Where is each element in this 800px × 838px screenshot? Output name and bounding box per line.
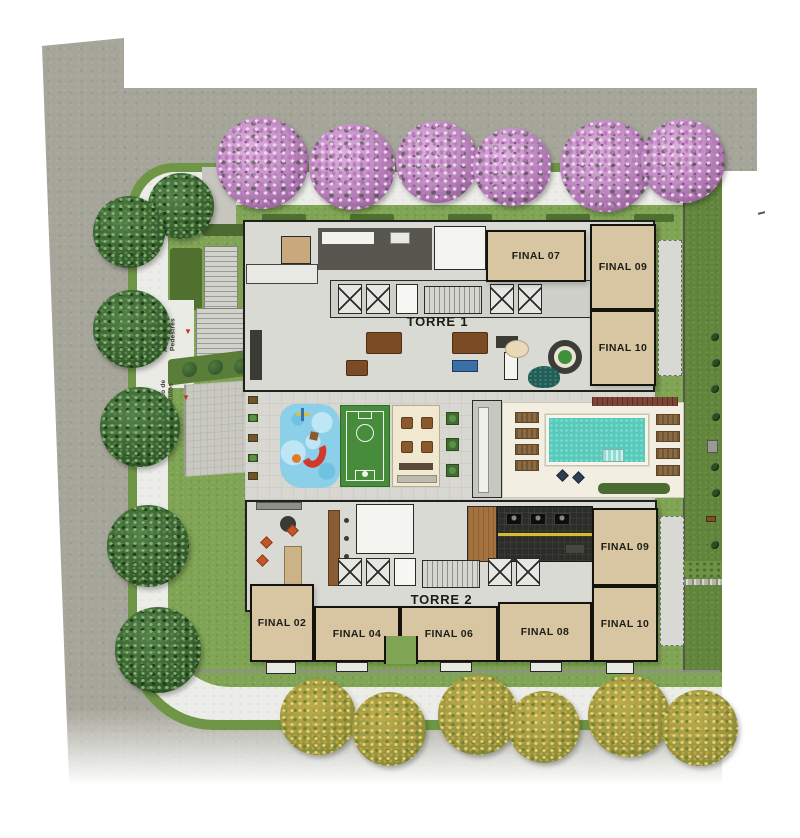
right-garden-strip xyxy=(683,170,722,672)
lobby-panel xyxy=(478,407,489,493)
elevator-shaft xyxy=(490,284,514,314)
pool-steps xyxy=(602,449,624,462)
flowering-tree-icon xyxy=(473,128,551,206)
hedge xyxy=(202,224,248,236)
porch xyxy=(440,662,472,672)
dining-table xyxy=(366,332,402,354)
porch xyxy=(530,662,562,672)
planter xyxy=(248,396,258,404)
planter xyxy=(446,464,459,477)
porch xyxy=(266,662,296,674)
lounger xyxy=(515,412,539,423)
autumn-tree-icon xyxy=(280,679,356,755)
pergola-dining xyxy=(392,405,440,487)
lounger xyxy=(515,460,539,471)
lounger xyxy=(656,431,680,442)
tree-icon xyxy=(93,290,171,368)
tree-icon xyxy=(100,387,180,467)
tree-icon xyxy=(93,196,165,268)
porch xyxy=(606,662,634,674)
court-center-circle xyxy=(356,424,374,442)
unit-final-10-bottom-label: FINAL 10 xyxy=(601,618,650,630)
flowering-tree-icon xyxy=(309,124,395,210)
stairwell xyxy=(424,286,482,314)
dining-table xyxy=(452,332,488,354)
tower-1-room xyxy=(281,236,311,264)
bench xyxy=(706,516,716,522)
elevator-car xyxy=(394,558,416,586)
unit-patio xyxy=(658,240,682,376)
pergola-counter xyxy=(399,463,433,470)
unit-final-08-label: FINAL 08 xyxy=(521,626,570,638)
unit-final-10-top: FINAL 10 xyxy=(590,310,656,386)
elevator-shaft xyxy=(366,558,390,586)
kitchen-counter xyxy=(322,232,374,244)
elevator-shaft xyxy=(518,284,542,314)
sports-court xyxy=(340,405,390,487)
pergola-table xyxy=(401,441,413,453)
lawn-notch xyxy=(384,636,418,664)
rug xyxy=(505,340,529,358)
stool xyxy=(344,518,349,523)
site-plan: Acesso de Pedestres ▼ Acesso de Veículos… xyxy=(0,0,800,838)
planter xyxy=(446,412,459,425)
pergola-bench xyxy=(397,475,437,483)
unit-final-02: FINAL 02 xyxy=(250,584,314,662)
pergola-table xyxy=(401,417,413,429)
elevator-shaft xyxy=(338,284,362,314)
stairwell xyxy=(422,560,480,588)
elevator-shaft xyxy=(488,558,512,586)
shelf xyxy=(256,502,302,510)
treadmill xyxy=(506,513,522,525)
gym-track-line xyxy=(498,533,592,536)
weight-bench xyxy=(566,545,584,553)
stray-mark xyxy=(758,211,765,215)
play-toy xyxy=(301,408,304,421)
lounger xyxy=(515,444,539,455)
unit-final-02-label: FINAL 02 xyxy=(258,617,307,629)
unit-final-07: FINAL 07 xyxy=(486,230,586,282)
unit-final-10-top-label: FINAL 10 xyxy=(599,342,648,354)
planter xyxy=(248,434,258,442)
planter xyxy=(248,454,258,462)
shrub-icon xyxy=(182,361,197,378)
planter xyxy=(248,414,258,422)
elevator-shaft xyxy=(366,284,390,314)
tree-icon xyxy=(107,505,189,587)
pergola-table xyxy=(421,441,433,453)
planter xyxy=(446,438,459,451)
lounger xyxy=(515,428,539,439)
lounger xyxy=(656,448,680,459)
table xyxy=(346,360,368,376)
kitchen-island xyxy=(390,232,410,244)
tower-1-kitchen xyxy=(318,228,432,270)
unit-final-09-top-label: FINAL 09 xyxy=(599,261,648,273)
garden-patch xyxy=(680,561,722,577)
shrub-icon xyxy=(208,359,223,376)
planter xyxy=(248,472,258,480)
shrub-icon xyxy=(711,412,720,421)
unit-patio xyxy=(660,516,684,646)
unit-final-07-label: FINAL 07 xyxy=(512,250,561,262)
utility-box xyxy=(707,440,718,453)
tower-2-room xyxy=(356,504,414,554)
pool xyxy=(549,418,645,462)
autumn-tree-icon xyxy=(662,690,738,766)
autumn-tree-icon xyxy=(352,692,426,766)
vehicle-access-marker-icon: ▼ xyxy=(182,394,190,402)
treadmill xyxy=(530,513,546,525)
flowering-tree-icon xyxy=(216,117,308,209)
flowering-tree-icon xyxy=(396,121,478,203)
gym xyxy=(497,506,593,562)
play-tower xyxy=(309,431,318,440)
courtyard-lobby xyxy=(472,400,502,498)
billiard-table xyxy=(452,360,478,372)
shrub-icon xyxy=(710,540,719,549)
tower-1-label: TORRE 1 xyxy=(380,314,495,329)
elevator-shaft xyxy=(516,558,540,586)
counter xyxy=(250,330,262,380)
shrub-icon xyxy=(710,384,719,393)
unit-final-10-bottom: FINAL 10 xyxy=(592,586,658,662)
tower-1-room xyxy=(246,264,318,284)
tree-icon xyxy=(115,607,201,693)
playground xyxy=(280,404,340,488)
porch xyxy=(336,662,368,672)
planting-bed xyxy=(528,366,560,388)
gym-wood-floor xyxy=(467,506,497,562)
court-player xyxy=(362,471,368,477)
treadmill xyxy=(554,513,570,525)
shrub-icon xyxy=(711,358,720,367)
flowering-tree-icon xyxy=(641,119,725,203)
unit-final-09-bottom-label: FINAL 09 xyxy=(601,541,650,553)
shrub-icon xyxy=(710,462,719,471)
unit-final-08: FINAL 08 xyxy=(498,602,592,662)
lounger xyxy=(656,465,680,476)
round-lounge-center xyxy=(558,350,572,364)
pedestrian-access-marker-icon: ▼ xyxy=(184,328,192,336)
elevator-car xyxy=(396,284,418,314)
lounger xyxy=(656,414,680,425)
unit-final-09-top: FINAL 09 xyxy=(590,224,656,310)
pergola-beam xyxy=(592,397,678,406)
autumn-tree-icon xyxy=(588,675,670,757)
autumn-tree-icon xyxy=(438,675,518,755)
tower-1-room xyxy=(434,226,486,270)
shrub-icon xyxy=(711,488,720,497)
dining-table xyxy=(284,546,302,586)
autumn-tree-icon xyxy=(508,691,580,763)
hedge xyxy=(598,483,670,494)
unit-final-06-label: FINAL 06 xyxy=(425,628,474,640)
court-goal-box xyxy=(358,411,372,419)
unit-final-09-bottom: FINAL 09 xyxy=(592,508,658,586)
elevator-shaft xyxy=(338,558,362,586)
shrub-icon xyxy=(710,332,719,341)
stool xyxy=(344,536,349,541)
play-equipment xyxy=(292,454,301,463)
slide-icon xyxy=(298,435,330,471)
pergola-table xyxy=(421,417,433,429)
unit-final-04-label: FINAL 04 xyxy=(333,628,382,640)
tower-2-label: TORRE 2 xyxy=(384,592,499,607)
flowering-tree-icon xyxy=(560,120,652,212)
gravel-path xyxy=(680,579,722,585)
entry-stairs xyxy=(204,246,238,312)
